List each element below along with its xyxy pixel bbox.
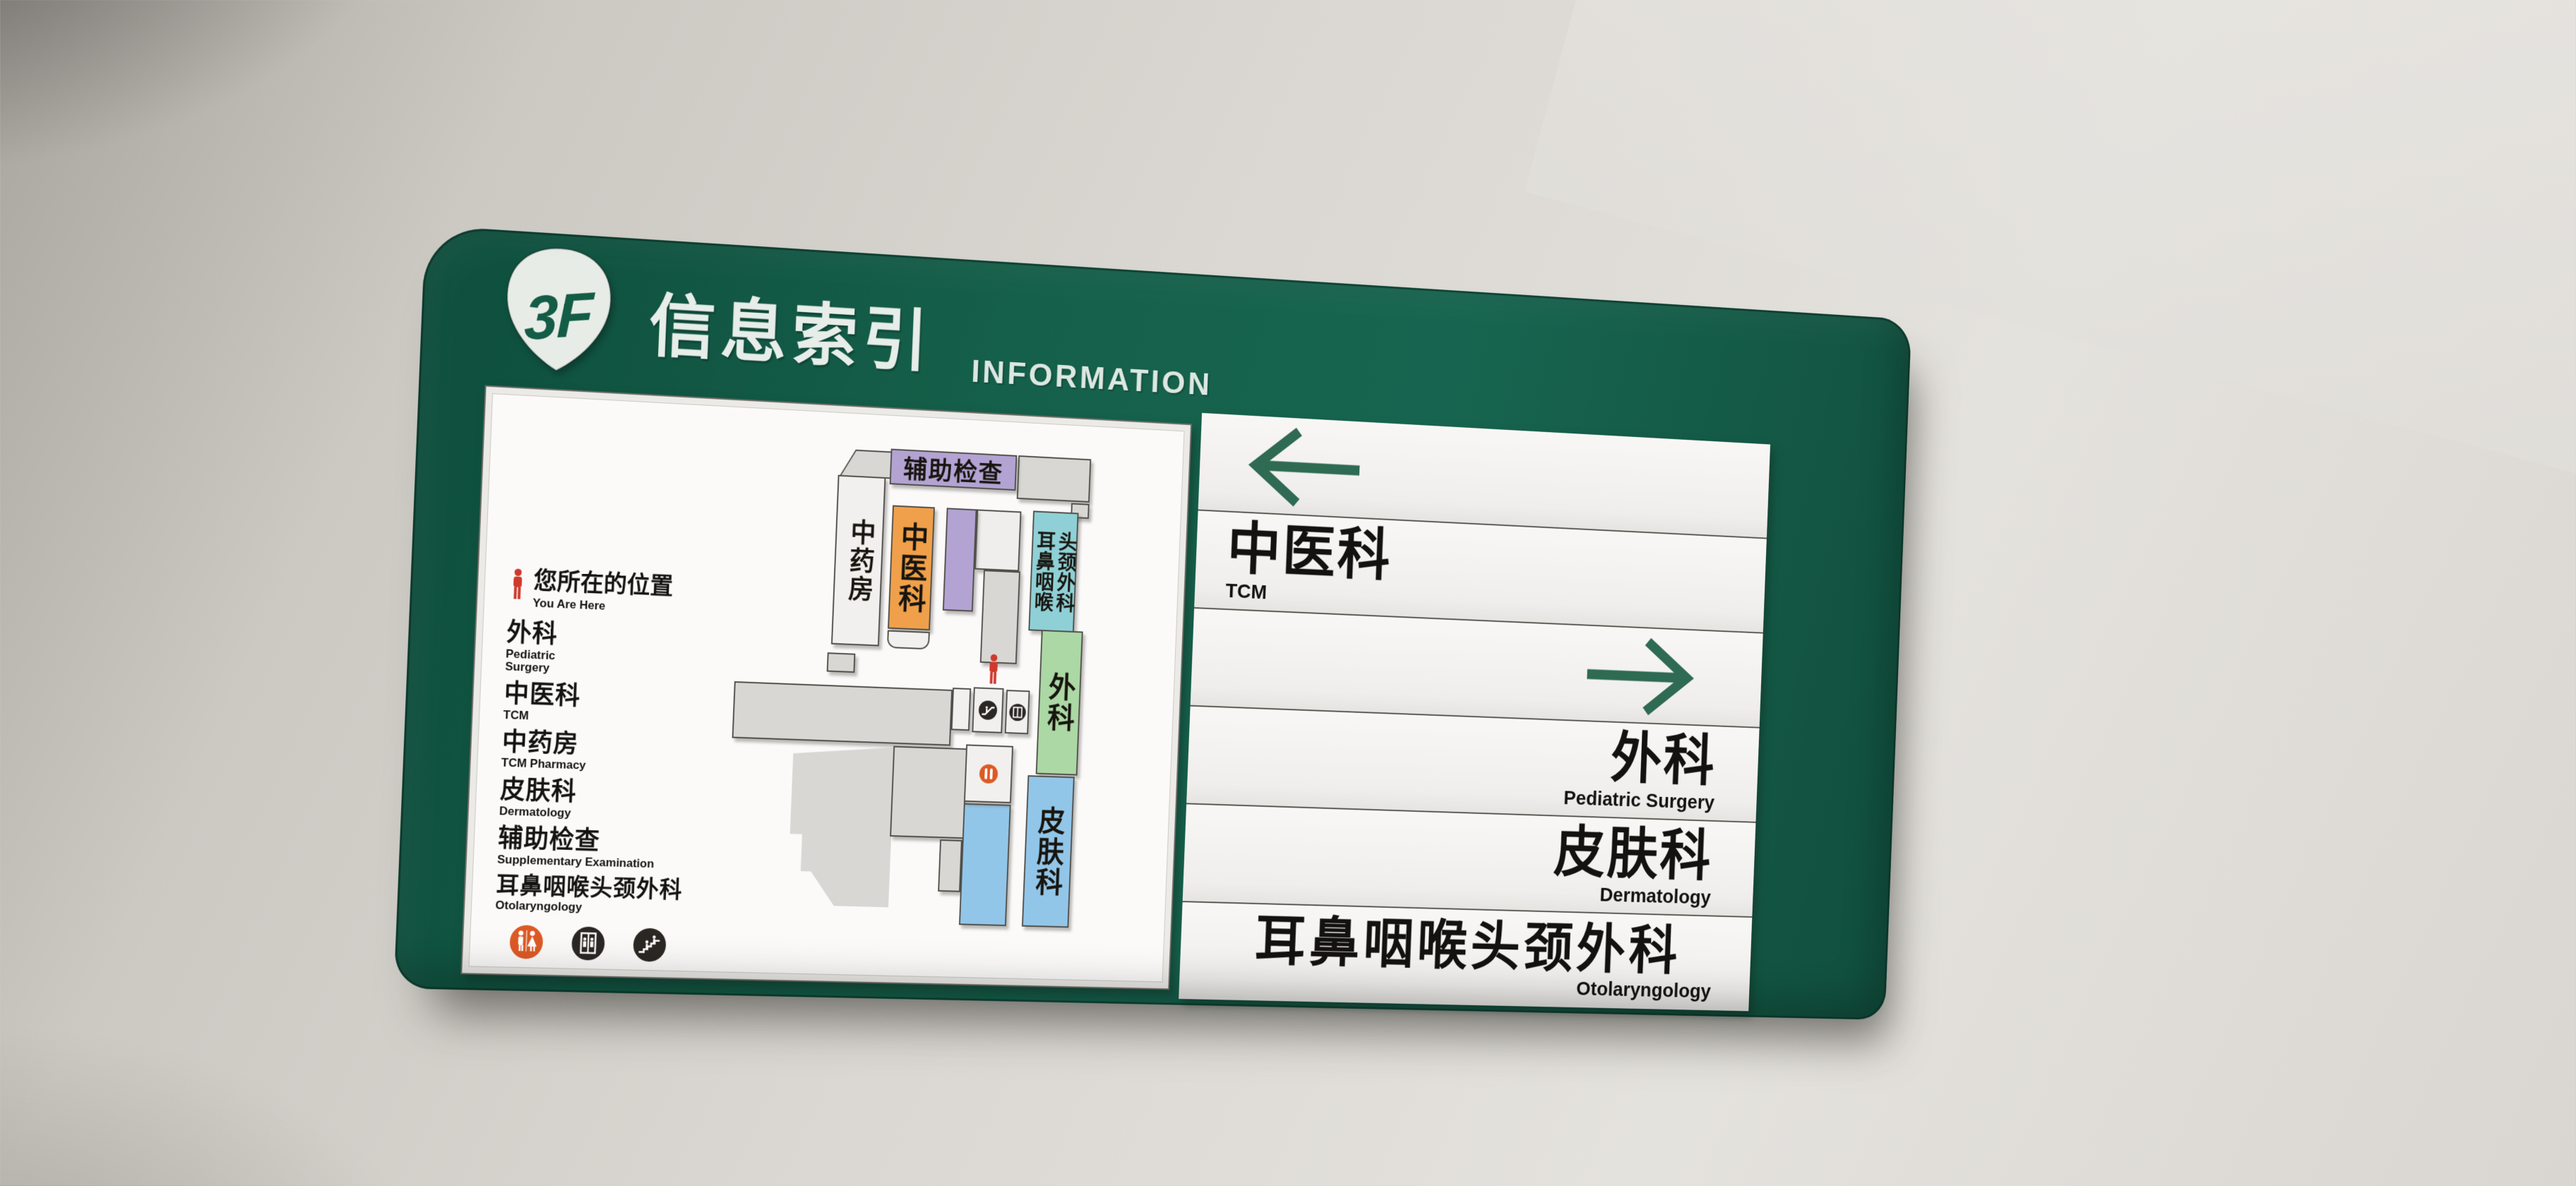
map-block-small <box>951 688 971 731</box>
map-block-escalator <box>972 687 1003 733</box>
map-block-blue <box>959 803 1011 926</box>
you-are-here-icon <box>508 568 527 601</box>
map-label-dermatology: 皮肤科 <box>1032 805 1065 898</box>
directory-entry-zh: 皮肤科 <box>1553 824 1714 885</box>
elevator-icon <box>571 926 607 962</box>
map-block-surgery: 外科 <box>1036 630 1083 776</box>
map-block-restroom <box>964 744 1013 803</box>
map-block-dermatology: 皮肤科 <box>1022 775 1075 928</box>
restroom-icon <box>508 923 544 959</box>
escalator-icon <box>632 927 667 962</box>
restroom-dot-icon <box>979 763 999 784</box>
directory-entry-zh: 耳鼻咽喉头颈外科 <box>1254 913 1682 978</box>
legend-item: 中药房 TCM Pharmacy <box>501 728 728 777</box>
you-are-here-zh: 您所在的位置 <box>533 569 674 600</box>
sign-title-zh: 信息索引 <box>648 291 934 375</box>
map-label-tcm: 中医科 <box>895 521 928 615</box>
legend-you-are-here: 您所在的位置 You Are Here <box>508 568 734 618</box>
map-block-gray <box>938 839 962 892</box>
map-label-tcm-pharmacy: 中药房 <box>844 517 873 604</box>
right-arrow-icon <box>1583 634 1707 719</box>
hospital-sign-board: 3F 信息索引 INFORMATION 辅助检查 中药房 中医科 <box>394 225 1912 1020</box>
map-block-elevator <box>1005 690 1030 734</box>
elevator-icon <box>1008 702 1027 721</box>
map-block-desk <box>887 630 930 650</box>
floor-map: 辅助检查 中药房 中医科 耳鼻咽喉 头颈外科 外科 皮肤科 <box>469 393 1185 982</box>
map-block-gray <box>1017 455 1092 503</box>
map-block-stepped <box>787 743 895 907</box>
legend-item: 外科 Pediatric Surgery <box>505 618 732 682</box>
map-block-tcm: 中医科 <box>888 505 935 631</box>
directory-entry-en: TCM <box>1225 581 1268 603</box>
directory-row-otolaryngology: 耳鼻咽喉头颈外科 Otolaryngology <box>1179 901 1752 1011</box>
floor-number: 3F <box>496 246 621 387</box>
map-block-tcm-pharmacy: 中药房 <box>831 475 885 647</box>
legend-item: 耳鼻咽喉头颈外科 Otolaryngology <box>495 873 722 918</box>
map-legend: 您所在的位置 You Are Here 外科 Pediatric Surgery… <box>493 568 734 964</box>
map-block-corridor <box>974 509 1021 571</box>
floor-badge: 3F <box>494 241 622 380</box>
you-are-here-marker-icon <box>986 654 1001 685</box>
legend-icons <box>493 923 720 964</box>
directory-entry-zh: 外科 <box>1610 730 1717 790</box>
photo-of-hospital-sign: { "header": { "floor": "3F", "title_zh":… <box>0 0 2576 1186</box>
left-arrow-icon <box>1234 423 1364 511</box>
map-block-ent: 耳鼻咽喉 头颈外科 <box>1028 510 1078 633</box>
directory-entry-en: Pediatric Surgery <box>1563 788 1715 813</box>
directory-panel: 中医科 TCM 外科 Pediatric Surgery 皮肤科 Dermato… <box>1179 413 1770 1011</box>
map-label-aux-exam: 辅助检查 <box>902 450 1004 491</box>
escalator-icon <box>978 700 998 721</box>
map-block-gray <box>890 746 967 839</box>
legend-item: 辅助检查 Supplementary Examination <box>497 825 724 873</box>
map-block-aux-exam: 辅助检查 <box>890 449 1018 491</box>
directory-entry-zh: 中医科 <box>1226 520 1393 585</box>
directory-row-dermatology: 皮肤科 Dermatology <box>1183 803 1756 916</box>
directory-entry-en: Dermatology <box>1599 885 1711 908</box>
map-label-ent: 耳鼻咽喉 头颈外科 <box>1030 529 1077 613</box>
legend-item: 皮肤科 Dermatology <box>499 777 727 825</box>
map-block-gray <box>827 652 856 673</box>
legend-item: 中医科 TCM <box>503 680 729 730</box>
map-block-lavender <box>943 508 977 611</box>
sign-title-en: INFORMATION <box>971 354 1213 400</box>
map-block-gray <box>732 681 953 746</box>
map-block-corridor <box>980 570 1020 664</box>
floor-map-panel: 辅助检查 中药房 中医科 耳鼻咽喉 头颈外科 外科 皮肤科 <box>460 385 1192 990</box>
map-label-surgery: 外科 <box>1044 671 1075 733</box>
directory-entry-en: Otolaryngology <box>1576 979 1750 1002</box>
